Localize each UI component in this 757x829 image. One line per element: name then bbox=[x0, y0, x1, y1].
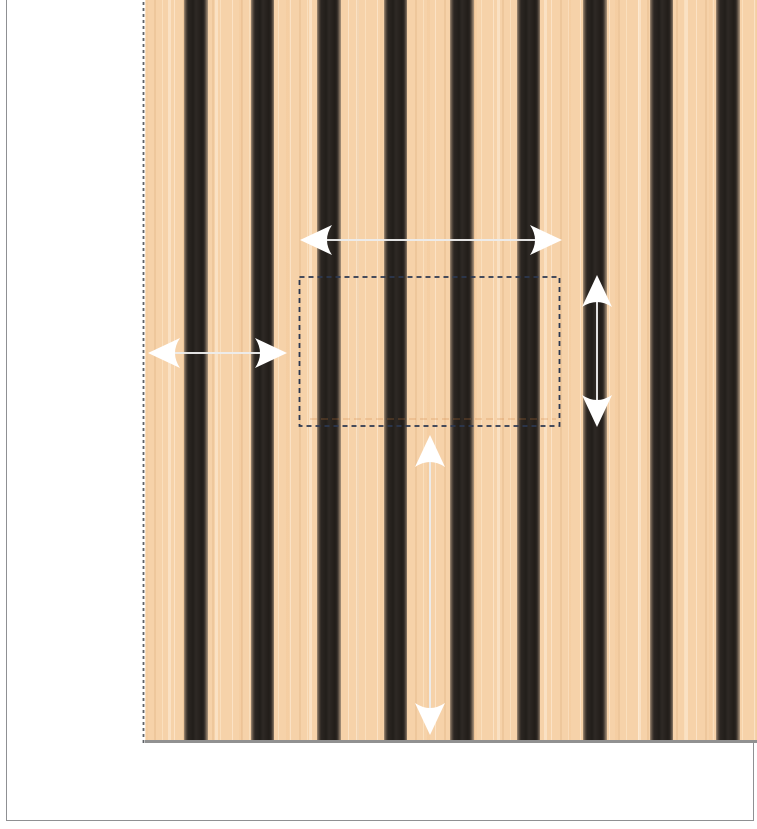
slat bbox=[650, 0, 674, 740]
slat bbox=[317, 0, 341, 740]
slat bbox=[384, 0, 408, 740]
slat bbox=[517, 0, 541, 740]
slat bbox=[251, 0, 275, 740]
slat bbox=[583, 0, 607, 740]
slat bbox=[450, 0, 474, 740]
slat bbox=[184, 0, 208, 740]
slat bbox=[716, 0, 740, 740]
wood-panel[interactable] bbox=[145, 0, 757, 743]
design-canvas bbox=[0, 0, 757, 829]
